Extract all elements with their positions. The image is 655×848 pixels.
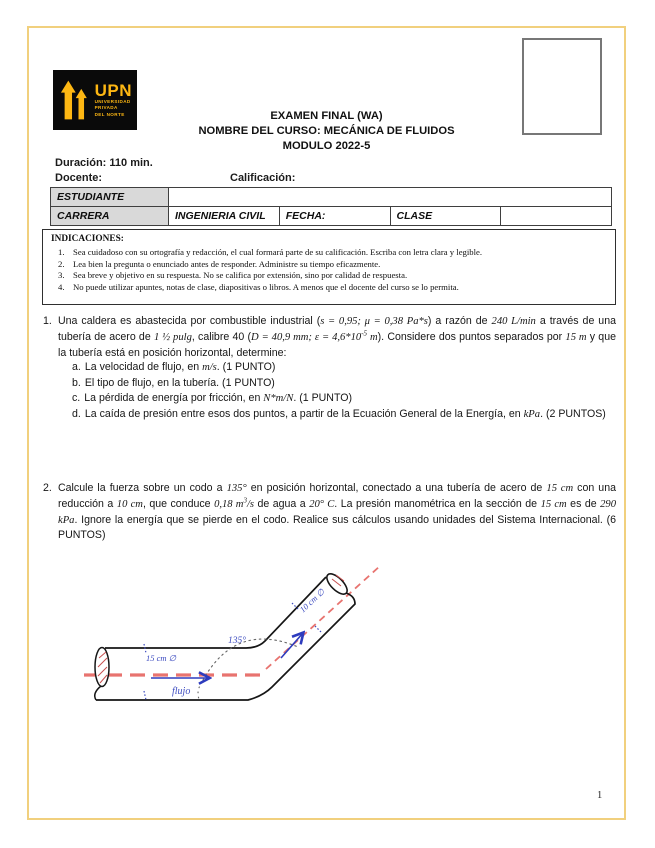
item-number: 2. (51, 259, 73, 271)
course-name: NOMBRE DEL CURSO: MECÁNICA DE FLUIDOS (27, 124, 626, 139)
logo-brand: UPN (95, 83, 132, 98)
question-body: Calcule la fuerza sobre un codo a 135° e… (58, 481, 616, 543)
question-2: 2. Calcule la fuerza sobre un codo a 135… (42, 481, 616, 543)
question-subitem: a.La velocidad de flujo, en m/s. (1 PUNT… (72, 360, 616, 376)
centerline-inclined (266, 566, 380, 669)
instruction-item: 1. Sea cuidadoso con su ortografía y red… (51, 247, 607, 259)
table-row: CARRERA INGENIERIA CIVIL FECHA: CLASE (51, 207, 612, 226)
outlet-cap (324, 571, 351, 598)
subitem-label: b. (72, 377, 81, 389)
question-subitem: b.El tipo de flujo, en la tubería. (1 PU… (72, 376, 616, 391)
pipe-elbow-drawing: 135° 15 cm ∅ flujo 10 cm ∅ (60, 557, 400, 727)
instructions-box: INDICACIONES: 1. Sea cuidadoso con su or… (42, 229, 616, 305)
instruction-item: 4. No puede utilizar apuntes, notas de c… (51, 282, 607, 294)
angle-label: 135° (228, 635, 246, 646)
subitem-text: La pérdida de energía por fricción, en N… (84, 392, 352, 404)
question-number: 1. (43, 314, 52, 329)
item-text: Lea bien la pregunta o enunciado antes d… (73, 259, 380, 271)
question-subitem: c.La pérdida de energía por fricción, en… (72, 391, 616, 407)
exam-title-block: EXAMEN FINAL (WA) NOMBRE DEL CURSO: MECÁ… (27, 109, 626, 154)
page-number: 1 (597, 790, 602, 801)
teacher-label: Docente: (55, 172, 102, 184)
pipe-elbow-diagram: 135° 15 cm ∅ flujo 10 cm ∅ (60, 557, 400, 727)
subitem-label: c. (72, 392, 80, 404)
question-body: Una caldera es abastecida por combustibl… (58, 314, 616, 360)
teacher-grade-row: Docente: Calificación: (55, 172, 575, 184)
subitem-label: d. (72, 408, 81, 420)
flow-label: flujo (172, 686, 190, 697)
pipe-left-end-curve (95, 686, 101, 700)
exam-page: UPN UNIVERSIDAD PRIVADA DEL NORTE EXAMEN… (0, 0, 655, 848)
student-value-cell (169, 188, 612, 207)
item-text: Sea breve y objetivo en su respuesta. No… (73, 270, 407, 282)
instruction-item: 3. Sea breve y objetivo en su respuesta.… (51, 270, 607, 282)
student-info-table: ESTUDIANTE CARRERA INGENIERIA CIVIL FECH… (50, 187, 612, 226)
module-label: MODULO 2022-5 (27, 139, 626, 154)
table-row: ESTUDIANTE (51, 188, 612, 207)
career-label-cell: CARRERA (51, 207, 169, 226)
question-subitem: d.La caída de presión entre esos dos pun… (72, 407, 616, 423)
exam-title: EXAMEN FINAL (WA) (27, 109, 626, 124)
subitem-label: a. (72, 361, 81, 373)
pipe-top-edge (105, 577, 326, 648)
question-1: 1. Una caldera es abastecida por combust… (42, 314, 616, 423)
instructions-title: INDICACIONES: (51, 234, 607, 246)
class-label-cell: CLASE (390, 207, 501, 226)
subitem-text: La caída de presión entre esos dos punto… (85, 408, 606, 420)
subitem-text: La velocidad de flujo, en m/s. (1 PUNTO) (85, 361, 276, 373)
class-value-cell (501, 207, 612, 226)
item-number: 1. (51, 247, 73, 259)
subitem-text: El tipo de flujo, en la tubería. (1 PUNT… (85, 377, 275, 389)
flow-arrow-inclined (281, 633, 303, 658)
pipe-bottom-edge (96, 593, 355, 700)
item-number: 3. (51, 270, 73, 282)
item-number: 4. (51, 282, 73, 294)
duration-label: Duración: 110 min. (55, 157, 153, 169)
question-number: 2. (43, 481, 52, 496)
career-value-cell: INGENIERIA CIVIL (169, 207, 280, 226)
angle-arc-tail (198, 682, 202, 699)
student-label-cell: ESTUDIANTE (51, 188, 169, 207)
item-text: Sea cuidadoso con su ortografía y redacc… (73, 247, 482, 259)
instruction-item: 2. Lea bien la pregunta o enunciado ante… (51, 259, 607, 271)
logo-subtitle-line: UNIVERSIDAD (95, 99, 132, 105)
inlet-diameter-label: 15 cm ∅ (146, 653, 177, 663)
grade-label: Calificación: (230, 172, 295, 184)
item-text: No puede utilizar apuntes, notas de clas… (73, 282, 459, 294)
date-label-cell: FECHA: (279, 207, 390, 226)
